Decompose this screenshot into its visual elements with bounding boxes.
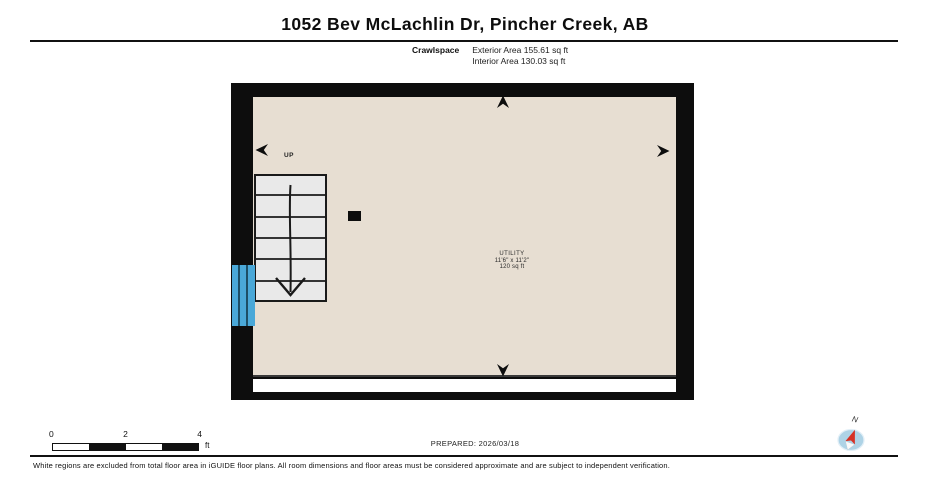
scale-segment-light [126, 444, 162, 450]
disclaimer-text: White regions are excluded from total fl… [33, 461, 913, 470]
scale-tick-0: 0 [49, 429, 54, 439]
window [232, 265, 255, 326]
excluded-white-region [253, 379, 676, 392]
floor-plan-drawing: UP UTILITY 11'6" x 11'2" 120 sq ft [231, 83, 694, 400]
room-name: UTILITY [452, 251, 572, 258]
west-extent-arrow-icon [254, 142, 270, 158]
room-area: 120 sq ft [452, 264, 572, 271]
support-post [348, 211, 361, 221]
east-extent-arrow-icon [655, 143, 671, 159]
scale-segment-dark [162, 444, 198, 450]
staircase [254, 174, 327, 302]
compass-north-label: N [851, 414, 859, 424]
north-extent-arrow-icon [495, 94, 511, 110]
exterior-area-text: Exterior Area 155.61 sq ft [472, 45, 568, 56]
scale-tick-2: 2 [123, 429, 128, 439]
room-dimensions: 11'6" x 11'2" [452, 258, 572, 265]
scale-tick-4: 4 [197, 429, 202, 439]
floor-plan-page: 1052 Bev McLachlin Dr, Pincher Creek, AB… [0, 0, 930, 500]
floor-summary: Crawlspace Exterior Area 155.61 sq ft In… [412, 45, 568, 67]
scale-segment-light [53, 444, 89, 450]
south-extent-arrow-icon [495, 362, 511, 378]
area-figures: Exterior Area 155.61 sq ft Interior Area… [472, 45, 568, 67]
header-divider [30, 40, 898, 42]
page-title: 1052 Bev McLachlin Dr, Pincher Creek, AB [0, 14, 930, 35]
prepared-date: PREPARED: 2026/03/18 [395, 439, 555, 448]
scale-unit-label: ft [205, 441, 209, 450]
floor-name-label: Crawlspace [412, 45, 459, 67]
scale-bar: 0 2 4 ft [52, 429, 199, 451]
stairs-up-label: UP [277, 152, 301, 159]
interior-area-text: Interior Area 130.03 sq ft [472, 56, 568, 67]
footer-divider [30, 455, 898, 457]
room-label: UTILITY 11'6" x 11'2" 120 sq ft [452, 251, 572, 271]
scale-bar-segments [52, 443, 199, 451]
compass-icon [834, 425, 868, 455]
scale-segment-dark [89, 444, 125, 450]
